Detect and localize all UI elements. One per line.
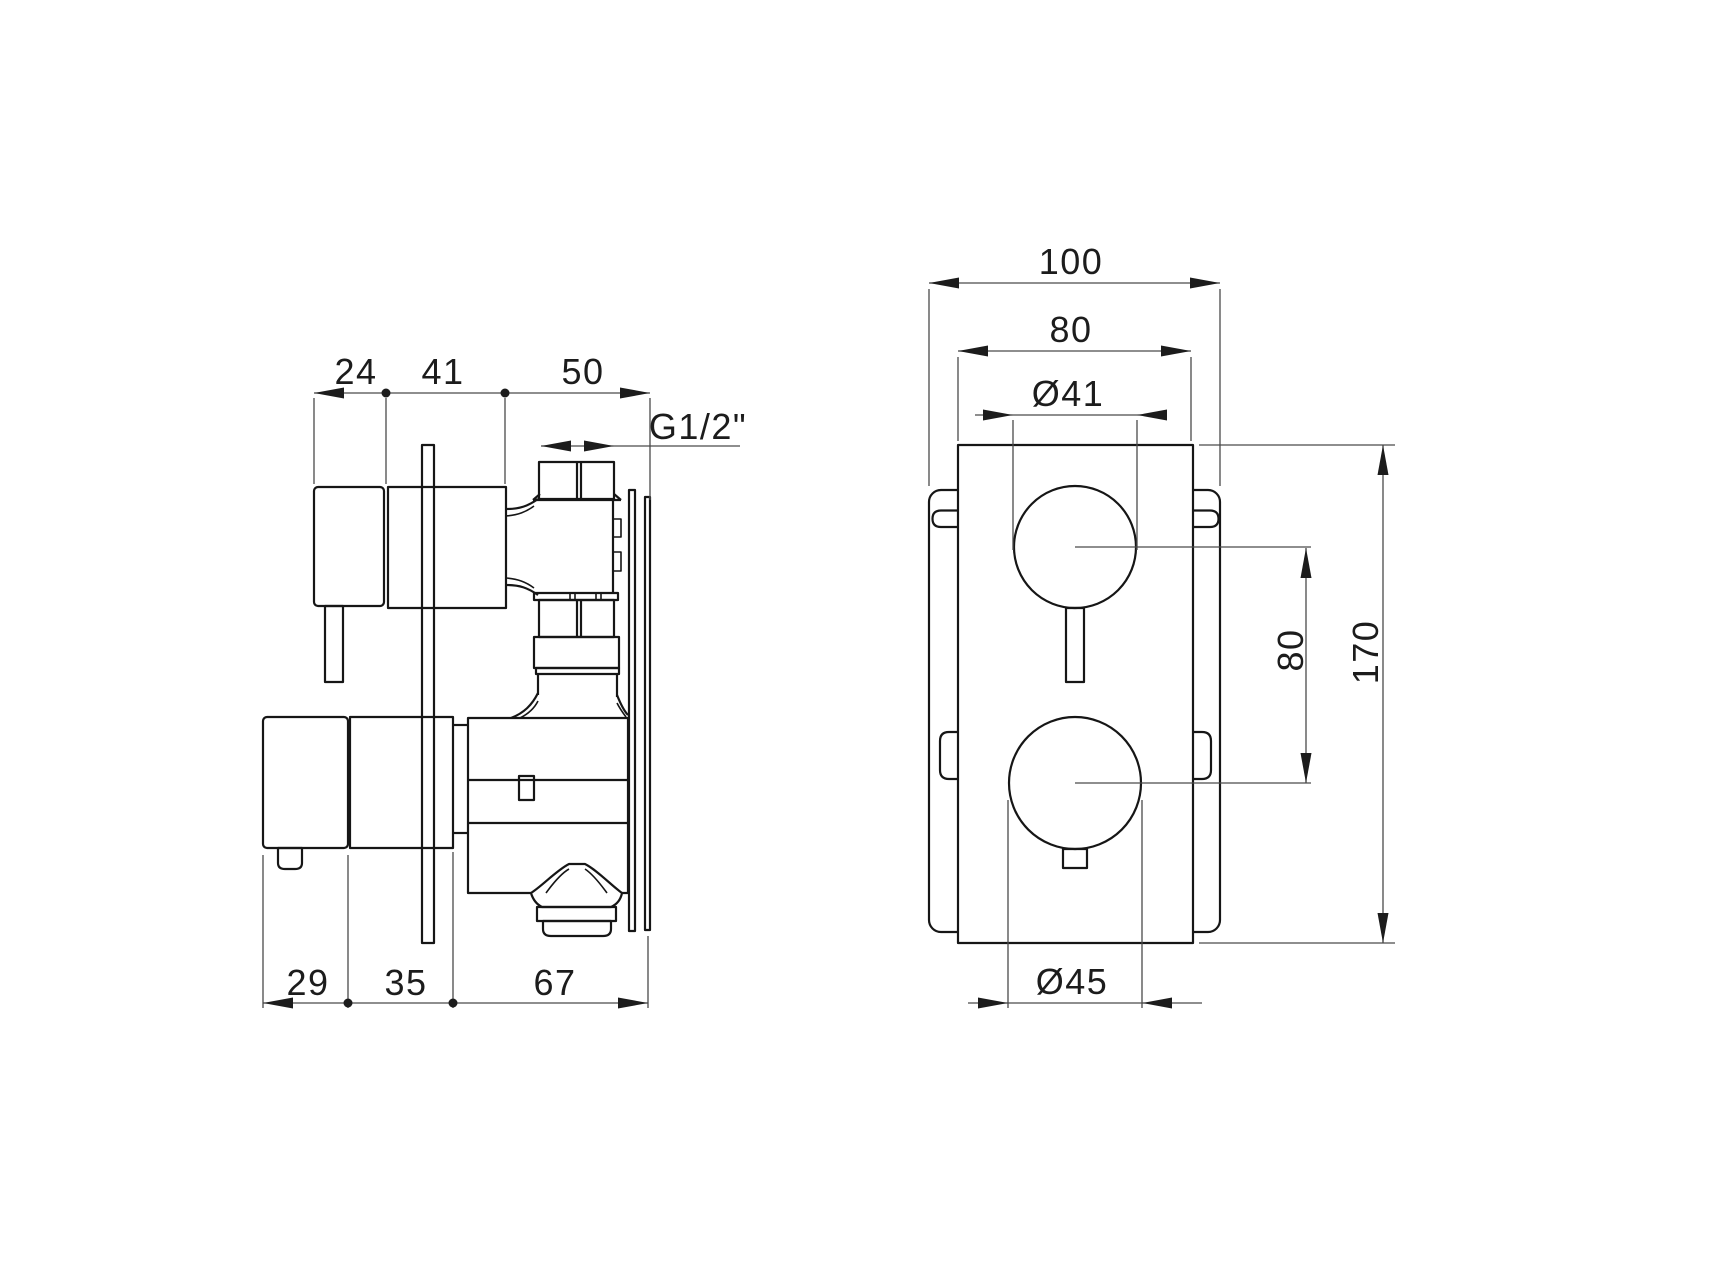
bottom-handle-grip [263, 717, 348, 848]
dim-label-80-spacing: 80 [1270, 628, 1311, 671]
seal-ring [536, 668, 619, 674]
dim-label-thread: G1/2" [649, 406, 747, 447]
thread-ring-lower [613, 552, 621, 571]
outlet-cap [543, 921, 611, 936]
dim-knob-spacing: 80 [1270, 548, 1312, 783]
bracket-bar-back [645, 497, 650, 930]
top-handle-profile [314, 487, 538, 682]
dim-label-29: 29 [286, 962, 329, 1003]
front-view: 100 80 Ø41 80 170 [929, 241, 1395, 1009]
bracket-edge [629, 490, 650, 931]
dim-label-80-width: 80 [1049, 309, 1092, 350]
hex-band [534, 637, 619, 668]
bottom-handle-body [350, 717, 453, 848]
top-handle-body [388, 487, 506, 608]
outlet-nut [537, 907, 616, 921]
dim-label-170: 170 [1345, 620, 1386, 685]
dim-thread-callout: G1/2" [541, 406, 747, 452]
outlet-spout-profile [531, 864, 622, 936]
bracket-bar-front [629, 490, 635, 931]
dim-chain-top: 24 41 50 [314, 351, 650, 500]
dim-label-35: 35 [384, 962, 427, 1003]
dim-label-dia41: Ø41 [1032, 373, 1105, 414]
valve-body [468, 718, 628, 893]
escutcheon-plate-edge [422, 445, 434, 943]
outlet-cone [531, 864, 622, 907]
top-handle-grip [314, 487, 384, 606]
temp-limit-button [278, 848, 302, 869]
side-view: 24 41 50 G1/2" 29 35 67 [263, 351, 747, 1009]
dim-label-67: 67 [533, 962, 576, 1003]
technical-drawing-page: 24 41 50 G1/2" 29 35 67 [0, 0, 1711, 1283]
dim-label-41: 41 [421, 351, 464, 392]
bottom-handle-profile [263, 717, 453, 869]
top-handle-lever-pin [325, 606, 343, 682]
valve-dimension-drawing: 24 41 50 G1/2" 29 35 67 [0, 0, 1711, 1283]
dim-label-dia45: Ø45 [1036, 961, 1109, 1002]
thread-ring-upper [613, 519, 621, 537]
dim-plate-height: 170 [1199, 445, 1395, 943]
dim-label-50: 50 [561, 351, 604, 392]
valve-body-profile [453, 718, 628, 893]
dim-label-24: 24 [334, 351, 377, 392]
dim-label-100: 100 [1039, 241, 1104, 282]
